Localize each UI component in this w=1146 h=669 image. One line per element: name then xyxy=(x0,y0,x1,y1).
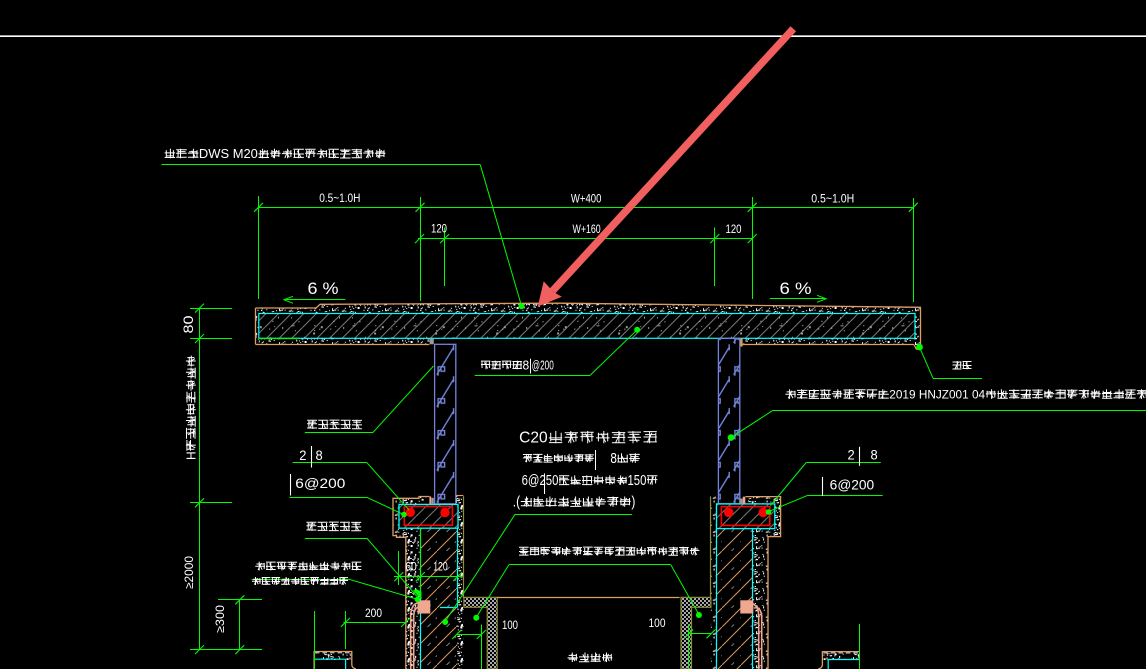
svg-text:0.5~1.0H: 0.5~1.0H xyxy=(811,191,854,205)
svg-text:): ) xyxy=(631,495,635,511)
svg-text:2: 2 xyxy=(848,446,855,462)
svg-text:8: 8 xyxy=(871,446,878,462)
svg-text:60: 60 xyxy=(405,560,417,573)
svg-text:W+400: W+400 xyxy=(571,191,602,205)
svg-text:6 %: 6 % xyxy=(308,280,339,298)
svg-text:8: 8 xyxy=(610,451,617,467)
svg-text:≥300: ≥300 xyxy=(213,605,227,633)
svg-text:120: 120 xyxy=(431,221,447,235)
svg-text:6@250: 6@250 xyxy=(522,473,559,489)
svg-text:100: 100 xyxy=(649,617,666,630)
svg-text:2019 HNJZ001 04: 2019 HNJZ001 04 xyxy=(889,387,985,401)
svg-text:@200: @200 xyxy=(532,358,554,372)
svg-text:6@200: 6@200 xyxy=(830,478,875,493)
svg-text:DWS M20: DWS M20 xyxy=(199,146,258,161)
svg-text:8: 8 xyxy=(523,358,530,372)
svg-text:2: 2 xyxy=(299,447,306,463)
svg-text:200: 200 xyxy=(365,607,382,620)
svg-text:150: 150 xyxy=(628,473,647,489)
svg-text:120: 120 xyxy=(726,222,742,236)
svg-text:.(: .( xyxy=(513,495,521,511)
svg-text:120: 120 xyxy=(433,561,448,574)
svg-text:6@200: 6@200 xyxy=(295,476,345,491)
svg-text:0.5~1.0H: 0.5~1.0H xyxy=(319,191,360,205)
svg-text:8: 8 xyxy=(316,447,323,463)
svg-text:80: 80 xyxy=(180,315,196,333)
svg-text:C20: C20 xyxy=(519,430,548,447)
svg-text:≥2000: ≥2000 xyxy=(182,556,196,589)
svg-text:W+160: W+160 xyxy=(573,222,601,236)
svg-text:H: H xyxy=(184,451,198,460)
svg-text:6 %: 6 % xyxy=(780,280,812,298)
svg-text:100: 100 xyxy=(502,619,518,632)
